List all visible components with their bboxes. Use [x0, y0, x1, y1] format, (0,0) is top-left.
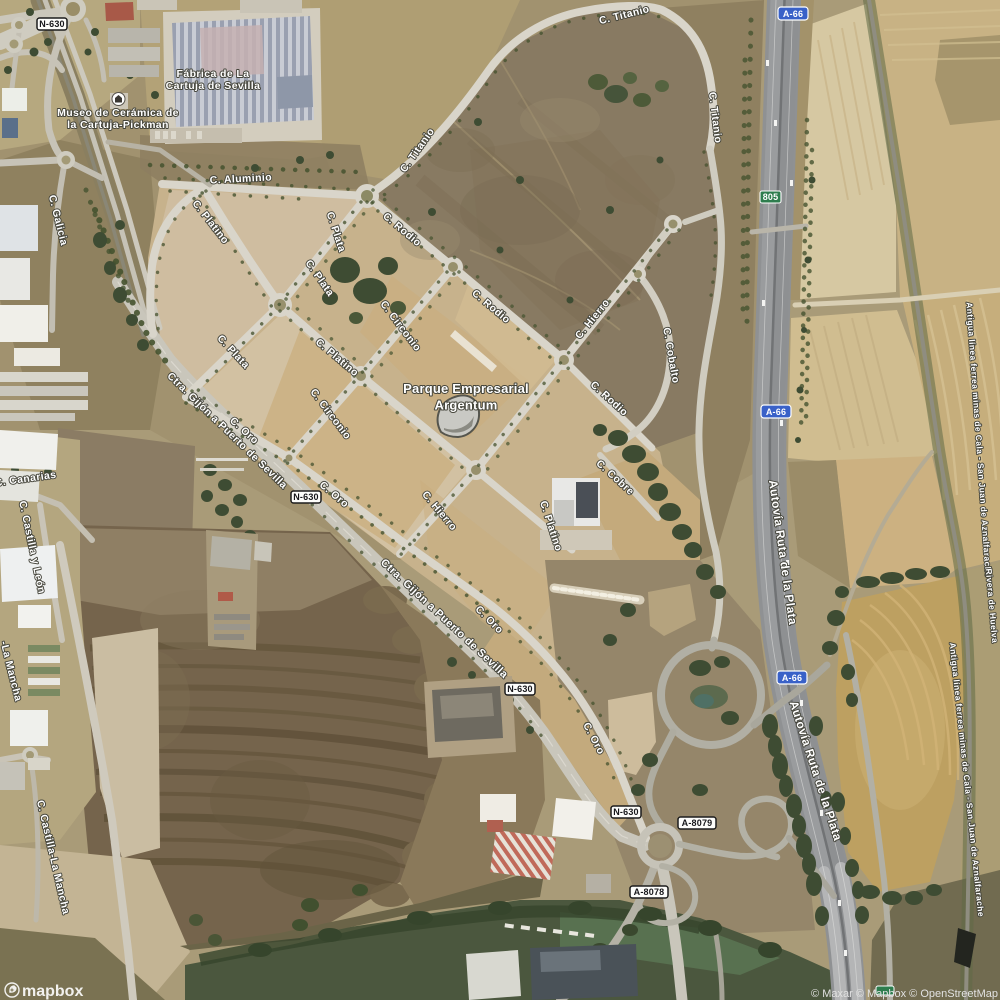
svg-text:A-8078: A-8078 [634, 887, 665, 897]
svg-text:Parque Empresarial: Parque Empresarial [403, 381, 529, 396]
svg-text:Argentum: Argentum [435, 398, 498, 413]
svg-text:Fábrica de La: Fábrica de La [177, 68, 250, 80]
svg-text:Cartuja de Sevilla: Cartuja de Sevilla [166, 80, 261, 92]
svg-text:© Maxar © Mapbox © OpenStreetM: © Maxar © Mapbox © OpenStreetMap [811, 988, 998, 1000]
svg-text:la Cartuja-Pickman: la Cartuja-Pickman [67, 119, 169, 131]
svg-text:805: 805 [763, 192, 779, 202]
svg-text:Museo de Cerámica de: Museo de Cerámica de [57, 107, 179, 119]
svg-text:A-8079: A-8079 [682, 818, 713, 828]
svg-text:A-66: A-66 [782, 673, 802, 683]
svg-text:N-630: N-630 [293, 492, 319, 502]
svg-text:N-630: N-630 [613, 807, 639, 817]
svg-text:N-630: N-630 [39, 19, 65, 29]
svg-text:N-630: N-630 [507, 684, 533, 694]
svg-text:A-66: A-66 [783, 9, 803, 19]
svg-text:A-66: A-66 [766, 407, 786, 417]
svg-text:mapbox: mapbox [22, 983, 83, 1000]
